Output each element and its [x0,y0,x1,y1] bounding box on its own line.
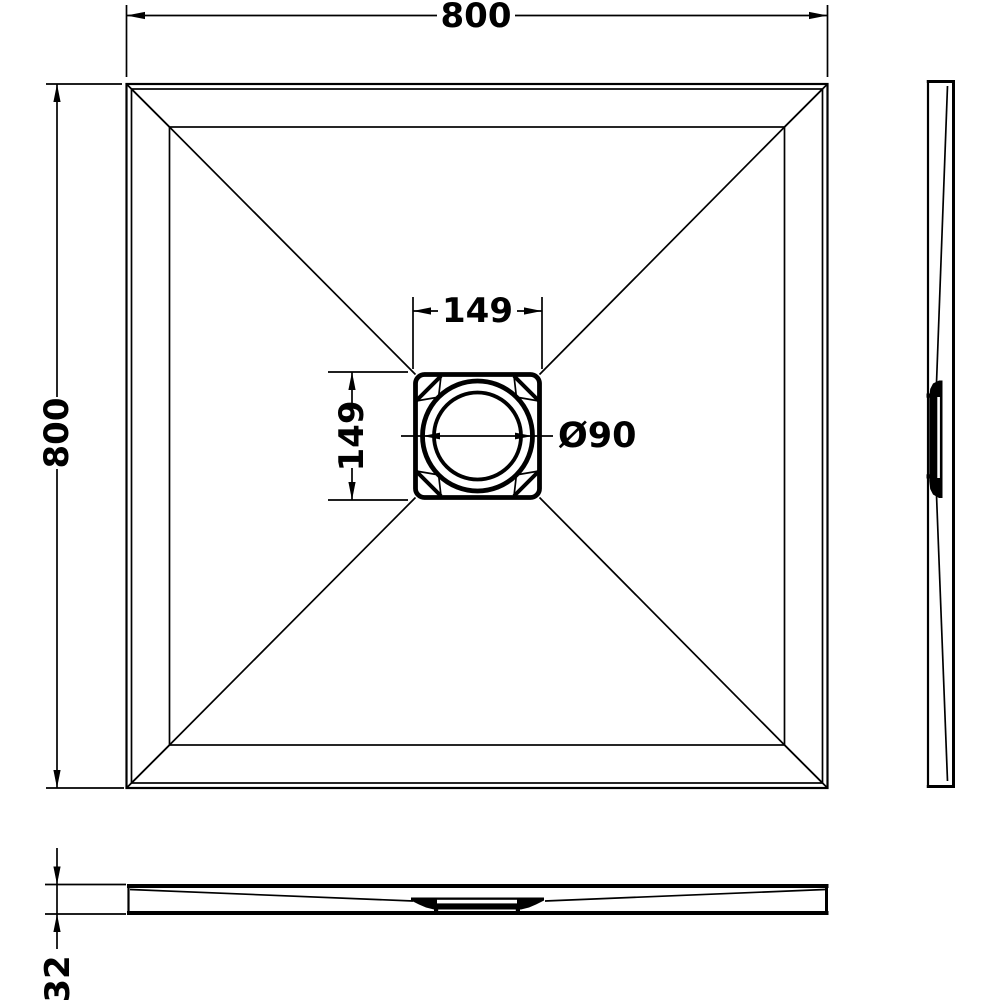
dim-label-tray-thickness: 32 [38,955,78,1000]
drawing-background [0,0,1000,1000]
dim-label-waste-diameter: Ø90 [558,416,636,456]
shower-tray-drawing: 800 800 149 149 Ø90 [0,0,1000,1000]
side-drain-leg [927,474,931,478]
front-drain-slot [437,900,517,904]
side-drain-slot [937,397,940,478]
technical-drawing-page: 800 800 149 149 Ø90 [0,0,1000,1000]
front-drain-leg [434,908,438,914]
side-drain-leg [927,394,931,398]
front-drain-profile [411,898,544,910]
dim-label-overall-width: 800 [441,0,512,36]
dim-label-overall-depth: 800 [37,398,77,469]
side-drain-profile [929,381,942,499]
front-drain-leg [516,908,520,914]
dim-label-drain-box-height: 149 [332,401,372,472]
dim-label-drain-box-width: 149 [442,291,513,331]
